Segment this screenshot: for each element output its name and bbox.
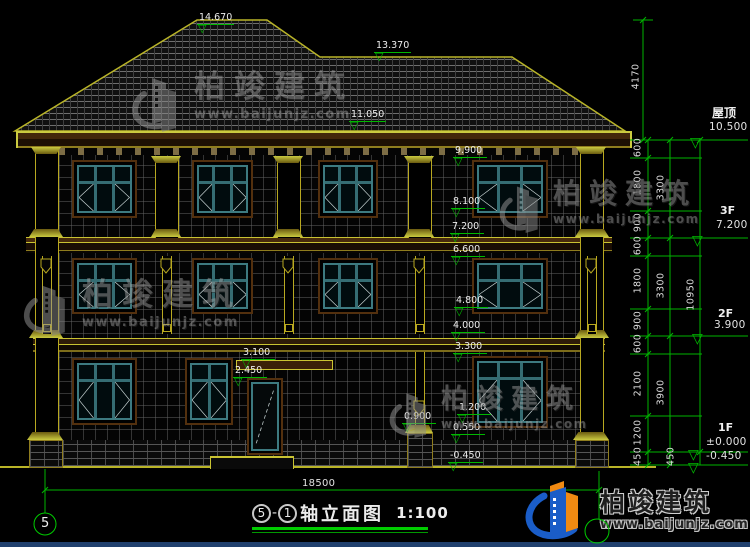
elevation-triangle-icon: ▽ xyxy=(403,422,411,433)
elevation-mark: -0.450▽ xyxy=(448,451,483,463)
drawing-title: 5 - 1 轴立面图 1:100 xyxy=(252,500,449,526)
cad-elevation-drawing: 14.670▽ 13.370▽ 11.050▽ 9.900▽ 8.100▽ 7.… xyxy=(0,0,750,547)
elevation-mark: 14.670▽ xyxy=(197,13,234,25)
right-axis-bubble xyxy=(575,460,630,547)
floor-value-1f-minus: -0.450 xyxy=(706,451,742,463)
axis-bubble-left-number: 5 xyxy=(41,517,50,531)
title-underline xyxy=(252,527,428,530)
floor-value-1f: ±0.000 xyxy=(706,437,747,449)
elevation-triangle-icon: ▽ xyxy=(455,306,463,317)
title-axis-end: 1 xyxy=(278,504,297,523)
elevation-triangle-icon: ▽ xyxy=(451,232,459,243)
dim-segment: 450 xyxy=(633,435,644,479)
dim-segment: 1800 xyxy=(633,259,644,303)
elevation-mark: 7.200▽ xyxy=(450,222,484,234)
dim-subtotal: 3300 xyxy=(656,264,667,308)
elevation-mark: 3.100▽ xyxy=(241,348,275,360)
floor-value-3f: 7.200 xyxy=(716,220,748,232)
elevation-triangle-icon: ▽ xyxy=(454,156,462,167)
elevation-mark: 13.370▽ xyxy=(374,41,411,53)
floor-value-2f: 3.900 xyxy=(714,320,746,332)
floor-label-3f: 3F xyxy=(720,204,735,217)
dim-subtotal: 450 xyxy=(666,435,677,479)
elevation-mark: 8.100▽ xyxy=(451,197,485,209)
elevation-mark: 0.900▽ xyxy=(402,412,436,424)
dim-subtotal: 3900 xyxy=(656,371,667,415)
elevation-mark: 6.600▽ xyxy=(451,245,485,257)
elevation-mark: 9.900▽ xyxy=(453,146,487,158)
elevation-triangle-icon: ▽ xyxy=(452,255,460,266)
title-scale: 1:100 xyxy=(396,504,449,522)
elevation-mark: 2.450▽ xyxy=(233,366,267,378)
roof-level-value: 10.500 xyxy=(709,122,748,134)
dim-roof-height: 4170 xyxy=(631,55,642,99)
elevation-mark: 0.550▽ xyxy=(451,423,485,435)
dim-segment: 1800 xyxy=(633,161,644,205)
elevation-triangle-icon: ▽ xyxy=(234,376,242,387)
title-axis-start: 5 xyxy=(252,504,271,523)
elevation-mark: 1.200▽ xyxy=(457,403,491,415)
elevation-triangle-icon: ▽ xyxy=(375,51,383,62)
dim-subtotal: 3300 xyxy=(656,166,667,210)
roof-level-label: 屋顶 xyxy=(712,104,736,121)
elevation-triangle-icon: ▽ xyxy=(454,352,462,363)
elevation-triangle-icon: ▽ xyxy=(692,332,703,346)
title-separator: - xyxy=(272,505,277,521)
elevation-triangle-icon: ▽ xyxy=(198,23,206,34)
elevation-mark: 4.800▽ xyxy=(454,296,488,308)
elevation-triangle-icon: ▽ xyxy=(449,461,457,472)
dim-total-height: 10950 xyxy=(686,273,697,317)
dim-segment: 600 xyxy=(633,322,644,366)
elevation-triangle-icon: ▽ xyxy=(350,120,358,131)
elevation-triangle-icon: ▽ xyxy=(690,136,701,150)
company-logo: 柏竣建筑 www.baijunjz.com xyxy=(522,478,749,544)
title-name: 轴立面图 xyxy=(300,500,384,526)
elevation-mark: 11.050▽ xyxy=(349,110,386,122)
elevation-mark: 3.300▽ xyxy=(453,342,487,354)
title-underline-thin xyxy=(252,532,428,533)
elevation-mark: 4.000▽ xyxy=(451,321,485,333)
dim-total-width: 18500 xyxy=(302,478,335,489)
elevation-triangle-icon: ▽ xyxy=(692,234,703,248)
elevation-triangle-icon: ▽ xyxy=(452,207,460,218)
floor-label-1f: 1F xyxy=(718,421,733,434)
elevation-triangle-icon: ▽ xyxy=(688,461,699,475)
dim-segment: 2100 xyxy=(633,362,644,406)
elevation-triangle-icon: ▽ xyxy=(452,433,460,444)
